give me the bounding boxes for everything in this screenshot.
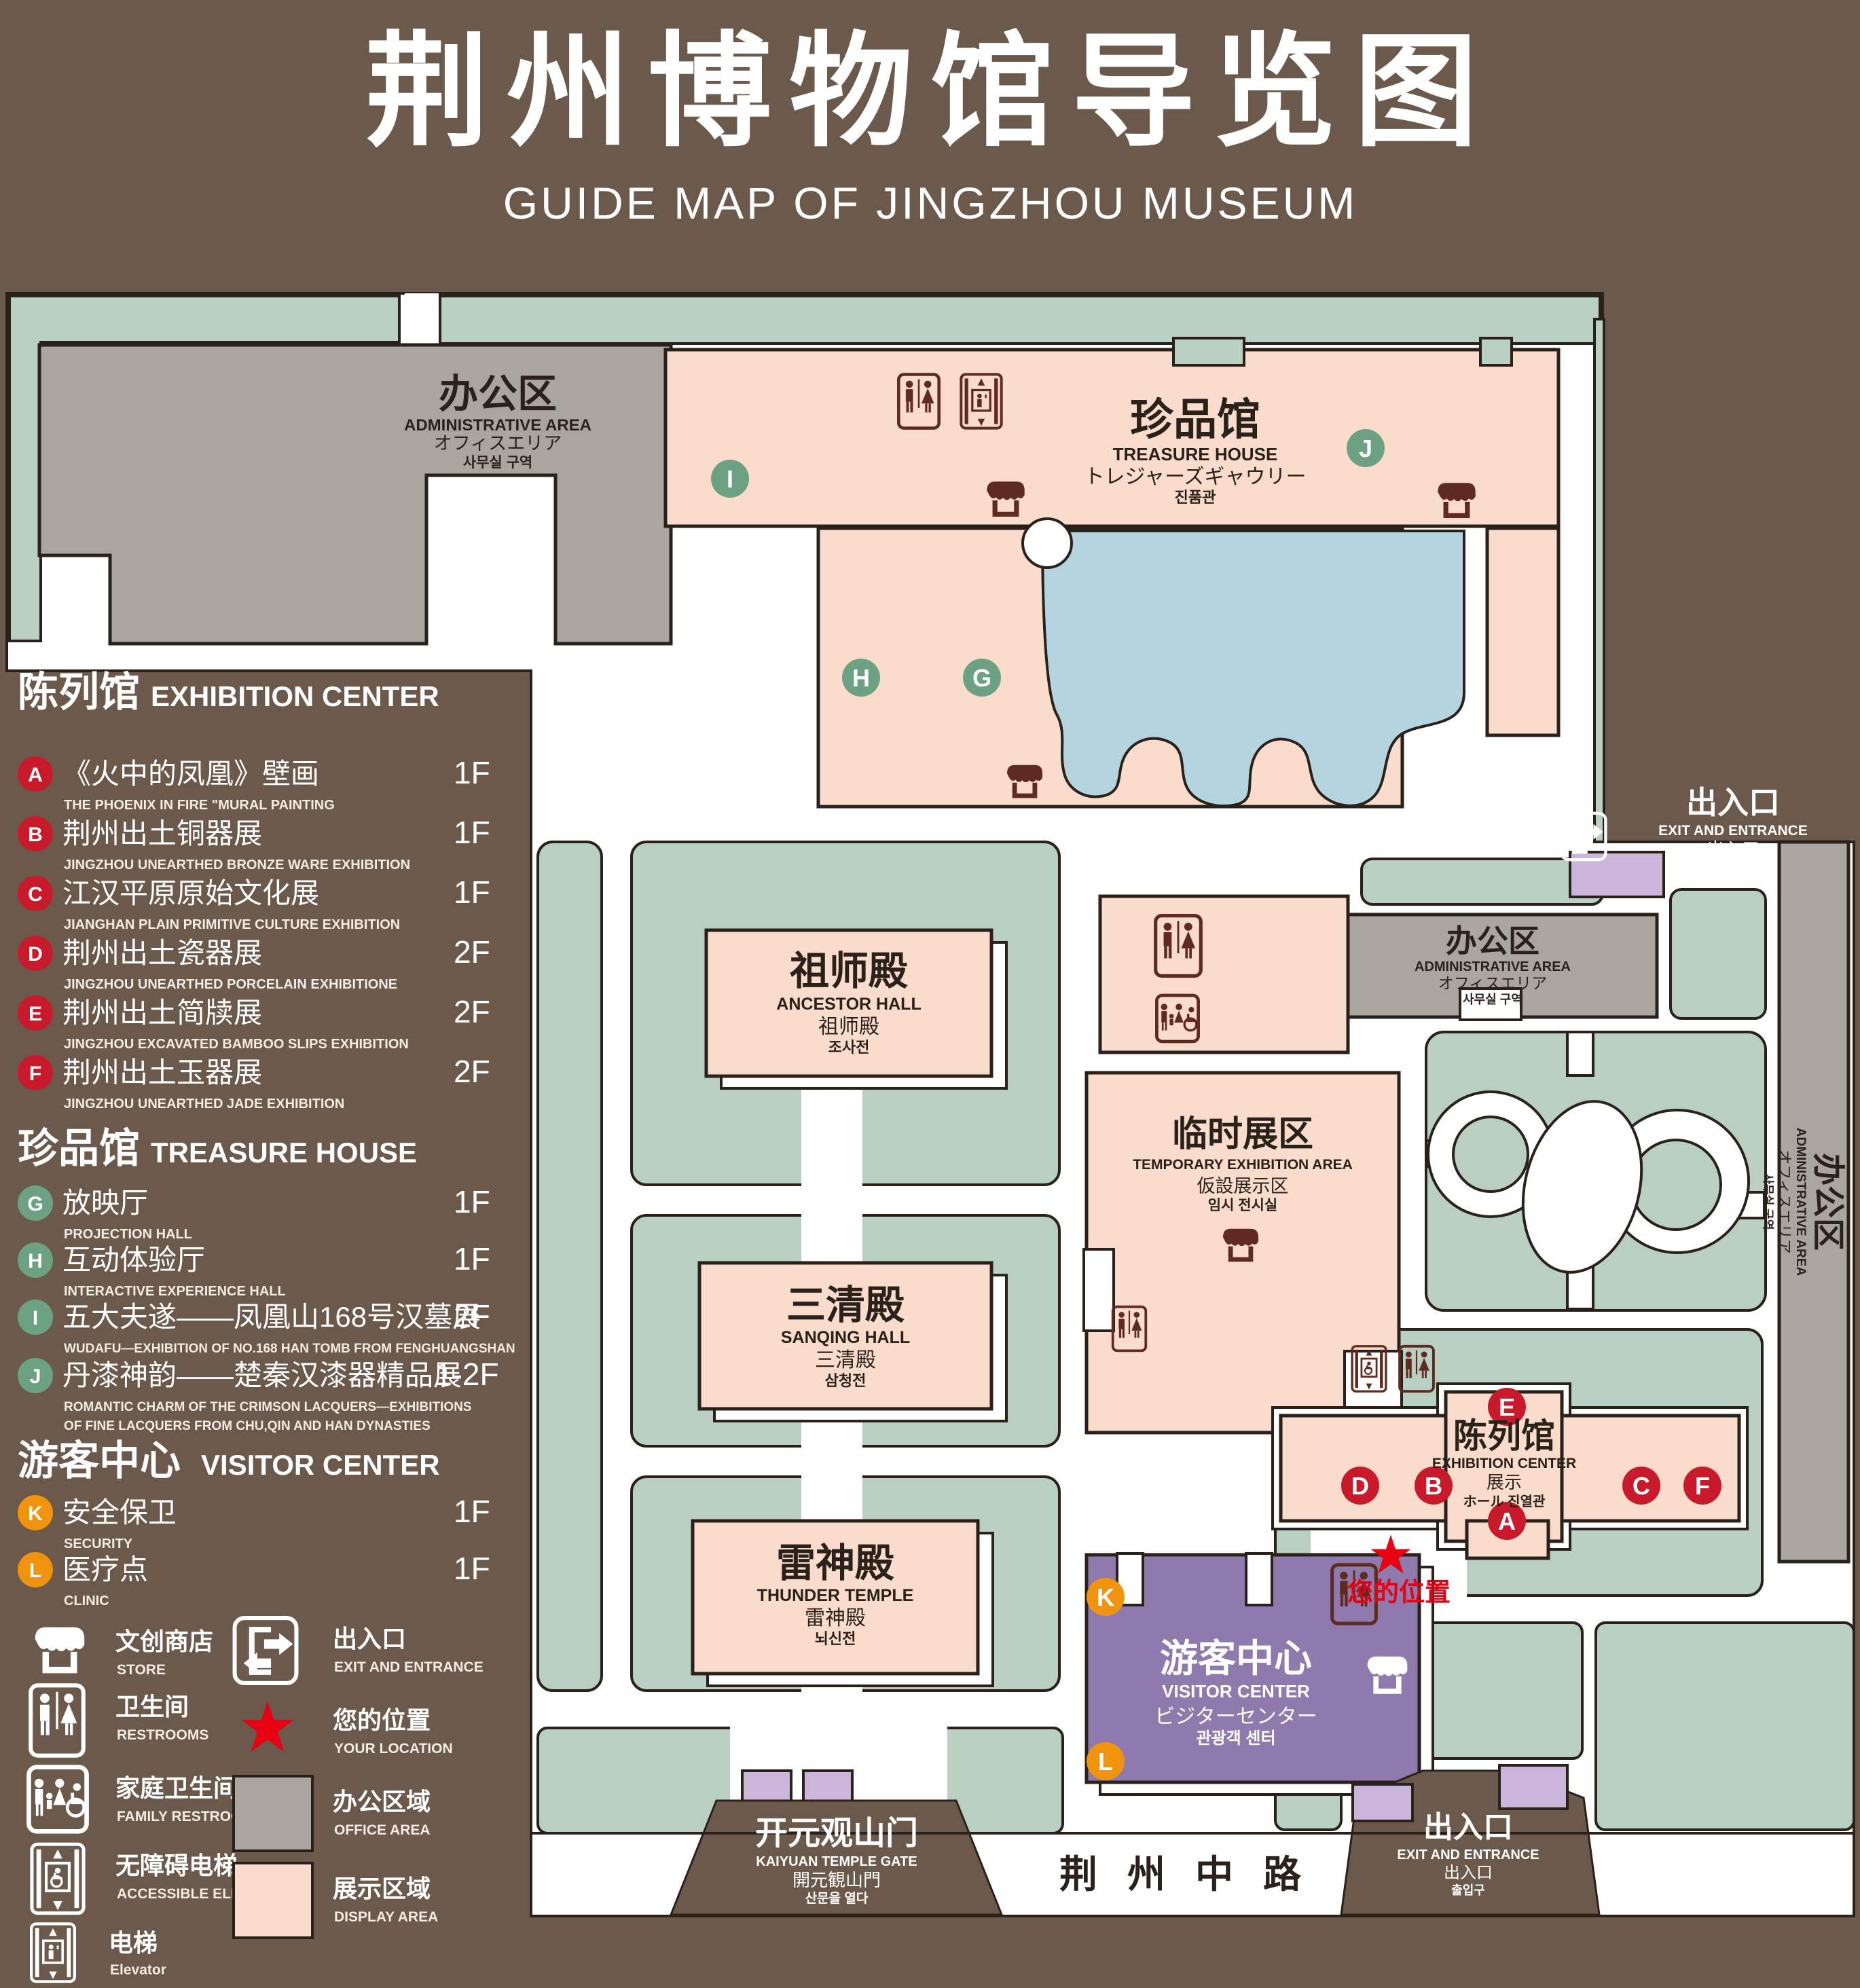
- svg-text:电梯: 电梯: [109, 1929, 158, 1957]
- map-badge-k: K: [1087, 1578, 1125, 1616]
- svg-text:L: L: [29, 1560, 41, 1582]
- svg-text:ビジターセンター: ビジターセンター: [1154, 1706, 1317, 1728]
- svg-text:K: K: [28, 1503, 43, 1525]
- svg-text:C: C: [28, 883, 43, 906]
- svg-text:放映厅: 放映厅: [62, 1187, 148, 1219]
- svg-text:산문을 열다: 산문을 열다: [805, 1891, 869, 1906]
- map-badge-c: C: [1622, 1467, 1660, 1505]
- svg-text:1F: 1F: [454, 755, 490, 790]
- svg-text:江汉平原原始文化展: 江汉平原原始文化展: [62, 877, 319, 909]
- poster-title-en: GUIDE MAP OF JINGZHOU MUSEUM: [503, 178, 1358, 228]
- svg-text:JINGZHOU UNEARTHED PORCELAIN E: JINGZHOU UNEARTHED PORCELAIN EXHIBITIONE: [64, 977, 397, 992]
- svg-text:임시 전시실: 임시 전시실: [1208, 1198, 1277, 1213]
- svg-text:1F: 1F: [454, 1241, 490, 1276]
- svg-text:開元観山門: 開元観山門: [792, 1870, 881, 1890]
- svg-text:办公区: 办公区: [1446, 923, 1539, 959]
- legend-head3-cn: 游客中心: [18, 1438, 181, 1484]
- svg-text:G: G: [27, 1193, 43, 1215]
- svg-text:2F: 2F: [454, 1298, 490, 1333]
- svg-text:KAIYUAN TEMPLE GATE: KAIYUAN TEMPLE GATE: [756, 1854, 917, 1869]
- lawn-left-strip: [538, 842, 602, 1691]
- map-badge-i: I: [711, 460, 749, 498]
- svg-text:EXIT AND ENTRANCE: EXIT AND ENTRANCE: [334, 1659, 484, 1675]
- svg-text:オフィスエリア: オフィスエリア: [1438, 974, 1548, 992]
- map-badge-j: J: [1347, 429, 1385, 467]
- svg-text:卫生间: 卫生间: [115, 1693, 189, 1720]
- lawn-right-sliver: [1594, 319, 1604, 842]
- svg-text:TREASURE HOUSE: TREASURE HOUSE: [1113, 444, 1278, 464]
- office-area-swatch: [234, 1776, 312, 1851]
- svg-text:사무실 구역: 사무실 구역: [463, 455, 532, 471]
- svg-text:D: D: [1351, 1472, 1369, 1500]
- svg-text:无障碍电梯: 无障碍电梯: [115, 1852, 238, 1879]
- svg-text:G: G: [972, 664, 991, 692]
- svg-text:ADMINISTRATIVE AREA: ADMINISTRATIVE AREA: [1793, 1128, 1808, 1276]
- svg-text:OFFICE AREA: OFFICE AREA: [334, 1822, 431, 1838]
- svg-text:I: I: [727, 465, 733, 493]
- poster: 荆州博物馆导览图 GUIDE MAP OF JINGZHOU MUSEUM: [0, 0, 1860, 1988]
- svg-text:H: H: [852, 664, 870, 692]
- svg-text:관광객 센터: 관광객 센터: [1196, 1729, 1275, 1748]
- legend-head1-cn: 陈列馆: [18, 669, 140, 715]
- svg-text:三清殿: 三清殿: [786, 1283, 905, 1327]
- svg-text:STORE: STORE: [117, 1662, 166, 1678]
- svg-text:J: J: [30, 1365, 41, 1388]
- legend-head2-cn: 珍品馆: [18, 1126, 140, 1171]
- office-top-left: [39, 345, 671, 644]
- svg-text:ホール 진열관: ホール 진열관: [1463, 1494, 1546, 1509]
- lake-path-circle: [1023, 519, 1072, 568]
- svg-text:F: F: [29, 1063, 41, 1085]
- svg-text:游客中心: 游客中心: [1160, 1637, 1312, 1680]
- svg-text:三清殿: 三清殿: [815, 1349, 876, 1372]
- svg-text:B: B: [1425, 1472, 1442, 1500]
- svg-text:荆州出土瓷器展: 荆州出土瓷器展: [62, 937, 262, 969]
- svg-text:F: F: [1695, 1472, 1710, 1500]
- svg-text:文创商店: 文创商店: [115, 1627, 213, 1655]
- svg-text:WUDAFU—EXHIBITION OF NO.168 HA: WUDAFU—EXHIBITION OF NO.168 HAN TOMB FRO…: [64, 1342, 515, 1356]
- svg-text:出入口: 出入口: [1686, 785, 1780, 820]
- svg-text:JIANGHAN PLAIN PRIMITIVE CULTU: JIANGHAN PLAIN PRIMITIVE CULTURE EXHIBIT…: [64, 917, 400, 932]
- map-badge-g: G: [963, 659, 1001, 697]
- svg-text:Elevator: Elevator: [110, 1962, 166, 1978]
- svg-text:THUNDER TEMPLE: THUNDER TEMPLE: [757, 1586, 914, 1605]
- svg-text:展示: 展示: [1487, 1472, 1522, 1492]
- svg-text:INTERACTIVE EXPERIENCE HALL: INTERACTIVE EXPERIENCE HALL: [64, 1284, 286, 1299]
- svg-text:雷神殿: 雷神殿: [805, 1607, 866, 1630]
- svg-text:荆州出土玉器展: 荆州出土玉器展: [62, 1056, 262, 1088]
- svg-text:TEMPORARY EXHIBITION AREA: TEMPORARY EXHIBITION AREA: [1133, 1157, 1353, 1173]
- svg-text:JINGZHOU EXCAVATED BAMBOO SLIP: JINGZHOU EXCAVATED BAMBOO SLIPS EXHIBITI…: [64, 1037, 409, 1052]
- svg-text:사무실 구역: 사무실 구역: [1762, 1174, 1774, 1230]
- svg-text:办公区: 办公区: [439, 372, 557, 416]
- lawn-mid-right: [1362, 859, 1603, 904]
- svg-text:JINGZHOU UNEARTHED BRONZE WARE: JINGZHOU UNEARTHED BRONZE WARE EXHIBITIO…: [64, 858, 410, 872]
- central-restroom-building: [1100, 896, 1348, 1052]
- lawn-right-small: [1671, 889, 1766, 1018]
- svg-text:出入口: 出入口: [333, 1625, 406, 1653]
- svg-text:办公区: 办公区: [1810, 1153, 1846, 1251]
- svg-text:1-2F: 1-2F: [435, 1357, 499, 1392]
- svg-text:진품관: 진품관: [1175, 489, 1216, 506]
- svg-text:D: D: [28, 943, 43, 965]
- svg-text:CLINIC: CLINIC: [64, 1594, 109, 1608]
- accessible-elevator-icon: [32, 1844, 84, 1913]
- svg-text:YOUR LOCATION: YOUR LOCATION: [334, 1741, 453, 1756]
- svg-text:SANQING HALL: SANQING HALL: [781, 1328, 910, 1347]
- svg-text:安全保卫: 安全保卫: [62, 1496, 177, 1528]
- svg-text:출입구: 출입구: [1714, 861, 1751, 877]
- svg-text:荆州出土铜器展: 荆州出土铜器展: [62, 817, 262, 849]
- svg-text:出入口: 出入口: [1707, 839, 1759, 860]
- svg-text:PROJECTION HALL: PROJECTION HALL: [64, 1227, 192, 1242]
- svg-text:雷神殿: 雷神殿: [776, 1541, 894, 1585]
- svg-text:DISPLAY AREA: DISPLAY AREA: [334, 1909, 438, 1925]
- svg-text:EXHIBITION CENTER: EXHIBITION CENTER: [1432, 1456, 1576, 1471]
- poster-title-cn: 荆州博物馆导览图: [365, 22, 1495, 161]
- temp-notch-left: [1084, 1249, 1114, 1331]
- svg-text:THE PHOENIX IN FIRE "MURAL PAI: THE PHOENIX IN FIRE "MURAL PAINTING: [64, 798, 335, 813]
- map-badge-l: L: [1087, 1742, 1125, 1780]
- svg-text:荆州出土简牍展: 荆州出土简牍展: [62, 997, 262, 1029]
- svg-text:E: E: [29, 1003, 42, 1025]
- svg-text:互动体验厅: 互动体验厅: [62, 1244, 205, 1276]
- map-badge-d: D: [1341, 1467, 1379, 1505]
- svg-text:珍品馆: 珍品馆: [1130, 395, 1260, 444]
- svg-text:祖师殿: 祖师殿: [790, 949, 908, 993]
- svg-text:사무실 구역: 사무실 구역: [1463, 993, 1522, 1006]
- svg-text:仮設展示区: 仮設展示区: [1197, 1176, 1289, 1196]
- svg-text:K: K: [1097, 1583, 1114, 1611]
- svg-text:ADMINISTRATIVE AREA: ADMINISTRATIVE AREA: [404, 416, 591, 435]
- svg-text:I: I: [33, 1307, 38, 1329]
- map-badge-f: F: [1683, 1467, 1721, 1505]
- svg-text:ROMANTIC CHARM OF THE CRIMSON: ROMANTIC CHARM OF THE CRIMSON LACQUERS—E…: [64, 1400, 472, 1414]
- svg-text:丹漆神韵——楚秦汉漆器精品展: 丹漆神韵——楚秦汉漆器精品展: [62, 1359, 462, 1391]
- svg-text:EXIT AND ENTRANCE: EXIT AND ENTRANCE: [1397, 1847, 1539, 1862]
- svg-text:OF FINE LACQUERS FROM CHU,QIN: OF FINE LACQUERS FROM CHU,QIN AND HAN DY…: [64, 1419, 431, 1433]
- svg-text:ADMINISTRATIVE AREA: ADMINISTRATIVE AREA: [1415, 959, 1571, 974]
- svg-text:1F: 1F: [454, 875, 490, 910]
- svg-text:祖师殿: 祖师殿: [818, 1016, 879, 1038]
- accessible-elevator-icon: [1352, 1346, 1386, 1391]
- svg-text:EXIT AND ENTRANCE: EXIT AND ENTRANCE: [1658, 823, 1808, 839]
- map-badge-h: H: [842, 659, 880, 697]
- svg-text:出入口: 出入口: [1423, 1811, 1513, 1844]
- svg-text:医疗点: 医疗点: [62, 1553, 148, 1585]
- svg-text:トレジャーズギャウリー: トレジャーズギャウリー: [1084, 466, 1307, 488]
- legend-item-i: I 五大夫遂——凤凰山168号汉墓展 WUDAFU—EXHIBITION OF …: [18, 1298, 515, 1356]
- legend-head2-en: TREASURE HOUSE: [151, 1137, 417, 1168]
- svg-text:출입구: 출입구: [1451, 1883, 1485, 1897]
- svg-text:1F: 1F: [454, 1184, 490, 1219]
- svg-text:办公区域: 办公区域: [333, 1788, 431, 1816]
- corridor-top-left: [405, 293, 439, 346]
- lawn-top-band: [440, 296, 1600, 344]
- svg-text:オフィスエリア: オフィスエリア: [1776, 1149, 1793, 1254]
- svg-text:A: A: [1498, 1507, 1516, 1535]
- svg-text:L: L: [1098, 1748, 1113, 1775]
- svg-text:2F: 2F: [454, 994, 490, 1029]
- elevator-icon: [961, 374, 1001, 428]
- svg-text:C: C: [1633, 1472, 1650, 1500]
- svg-text:展示区域: 展示区域: [333, 1875, 431, 1902]
- svg-text:RESTROOMS: RESTROOMS: [117, 1727, 208, 1743]
- elevator-icon: [31, 1924, 75, 1982]
- svg-text:A: A: [28, 764, 43, 786]
- svg-text:家庭卫生间: 家庭卫生间: [115, 1774, 238, 1802]
- svg-text:삼청전: 삼청전: [825, 1372, 867, 1389]
- svg-text:1F: 1F: [454, 815, 490, 850]
- display-area-swatch: [234, 1863, 312, 1938]
- svg-text:您的位置: 您的位置: [333, 1706, 431, 1734]
- svg-text:出入口: 出入口: [1444, 1864, 1493, 1882]
- legend-head1-en: EXHIBITION CENTER: [151, 680, 439, 712]
- svg-text:开元观山门: 开元观山门: [755, 1816, 918, 1852]
- svg-text:オフィスエリア: オフィスエリア: [434, 433, 562, 454]
- svg-text:B: B: [28, 824, 43, 846]
- svg-text:SECURITY: SECURITY: [64, 1536, 133, 1551]
- svg-text:ANCESTOR HALL: ANCESTOR HALL: [776, 995, 921, 1014]
- svg-text:五大夫遂——凤凰山168号汉墓展: 五大夫遂——凤凰山168号汉墓展: [62, 1301, 481, 1333]
- svg-text:H: H: [28, 1250, 43, 1272]
- road-label: 荆州中路: [1059, 1853, 1331, 1896]
- legend-head3-en: VISITOR CENTER: [201, 1449, 440, 1481]
- svg-text:조사전: 조사전: [828, 1039, 870, 1056]
- svg-text:VISITOR CENTER: VISITOR CENTER: [1162, 1681, 1310, 1701]
- svg-text:临时展区: 临时展区: [1172, 1115, 1313, 1154]
- svg-text:뇌신전: 뇌신전: [815, 1630, 856, 1647]
- svg-text:1F: 1F: [454, 1551, 490, 1586]
- svg-text:JINGZHOU UNEARTHED JADE EXHIBI: JINGZHOU UNEARTHED JADE EXHIBITION: [64, 1097, 344, 1111]
- lawn-bottom-right: [1596, 1623, 1854, 1830]
- your-location-label: 您的位置: [1347, 1579, 1451, 1607]
- svg-text:陈列馆: 陈列馆: [1453, 1417, 1555, 1455]
- svg-text:《火中的凤凰》壁画: 《火中的凤凰》壁画: [62, 758, 319, 790]
- svg-text:1F: 1F: [454, 1494, 490, 1529]
- svg-text:2F: 2F: [454, 1054, 490, 1089]
- svg-text:J: J: [1359, 435, 1372, 462]
- map-badge-b: B: [1415, 1467, 1453, 1505]
- svg-text:2F: 2F: [454, 934, 490, 970]
